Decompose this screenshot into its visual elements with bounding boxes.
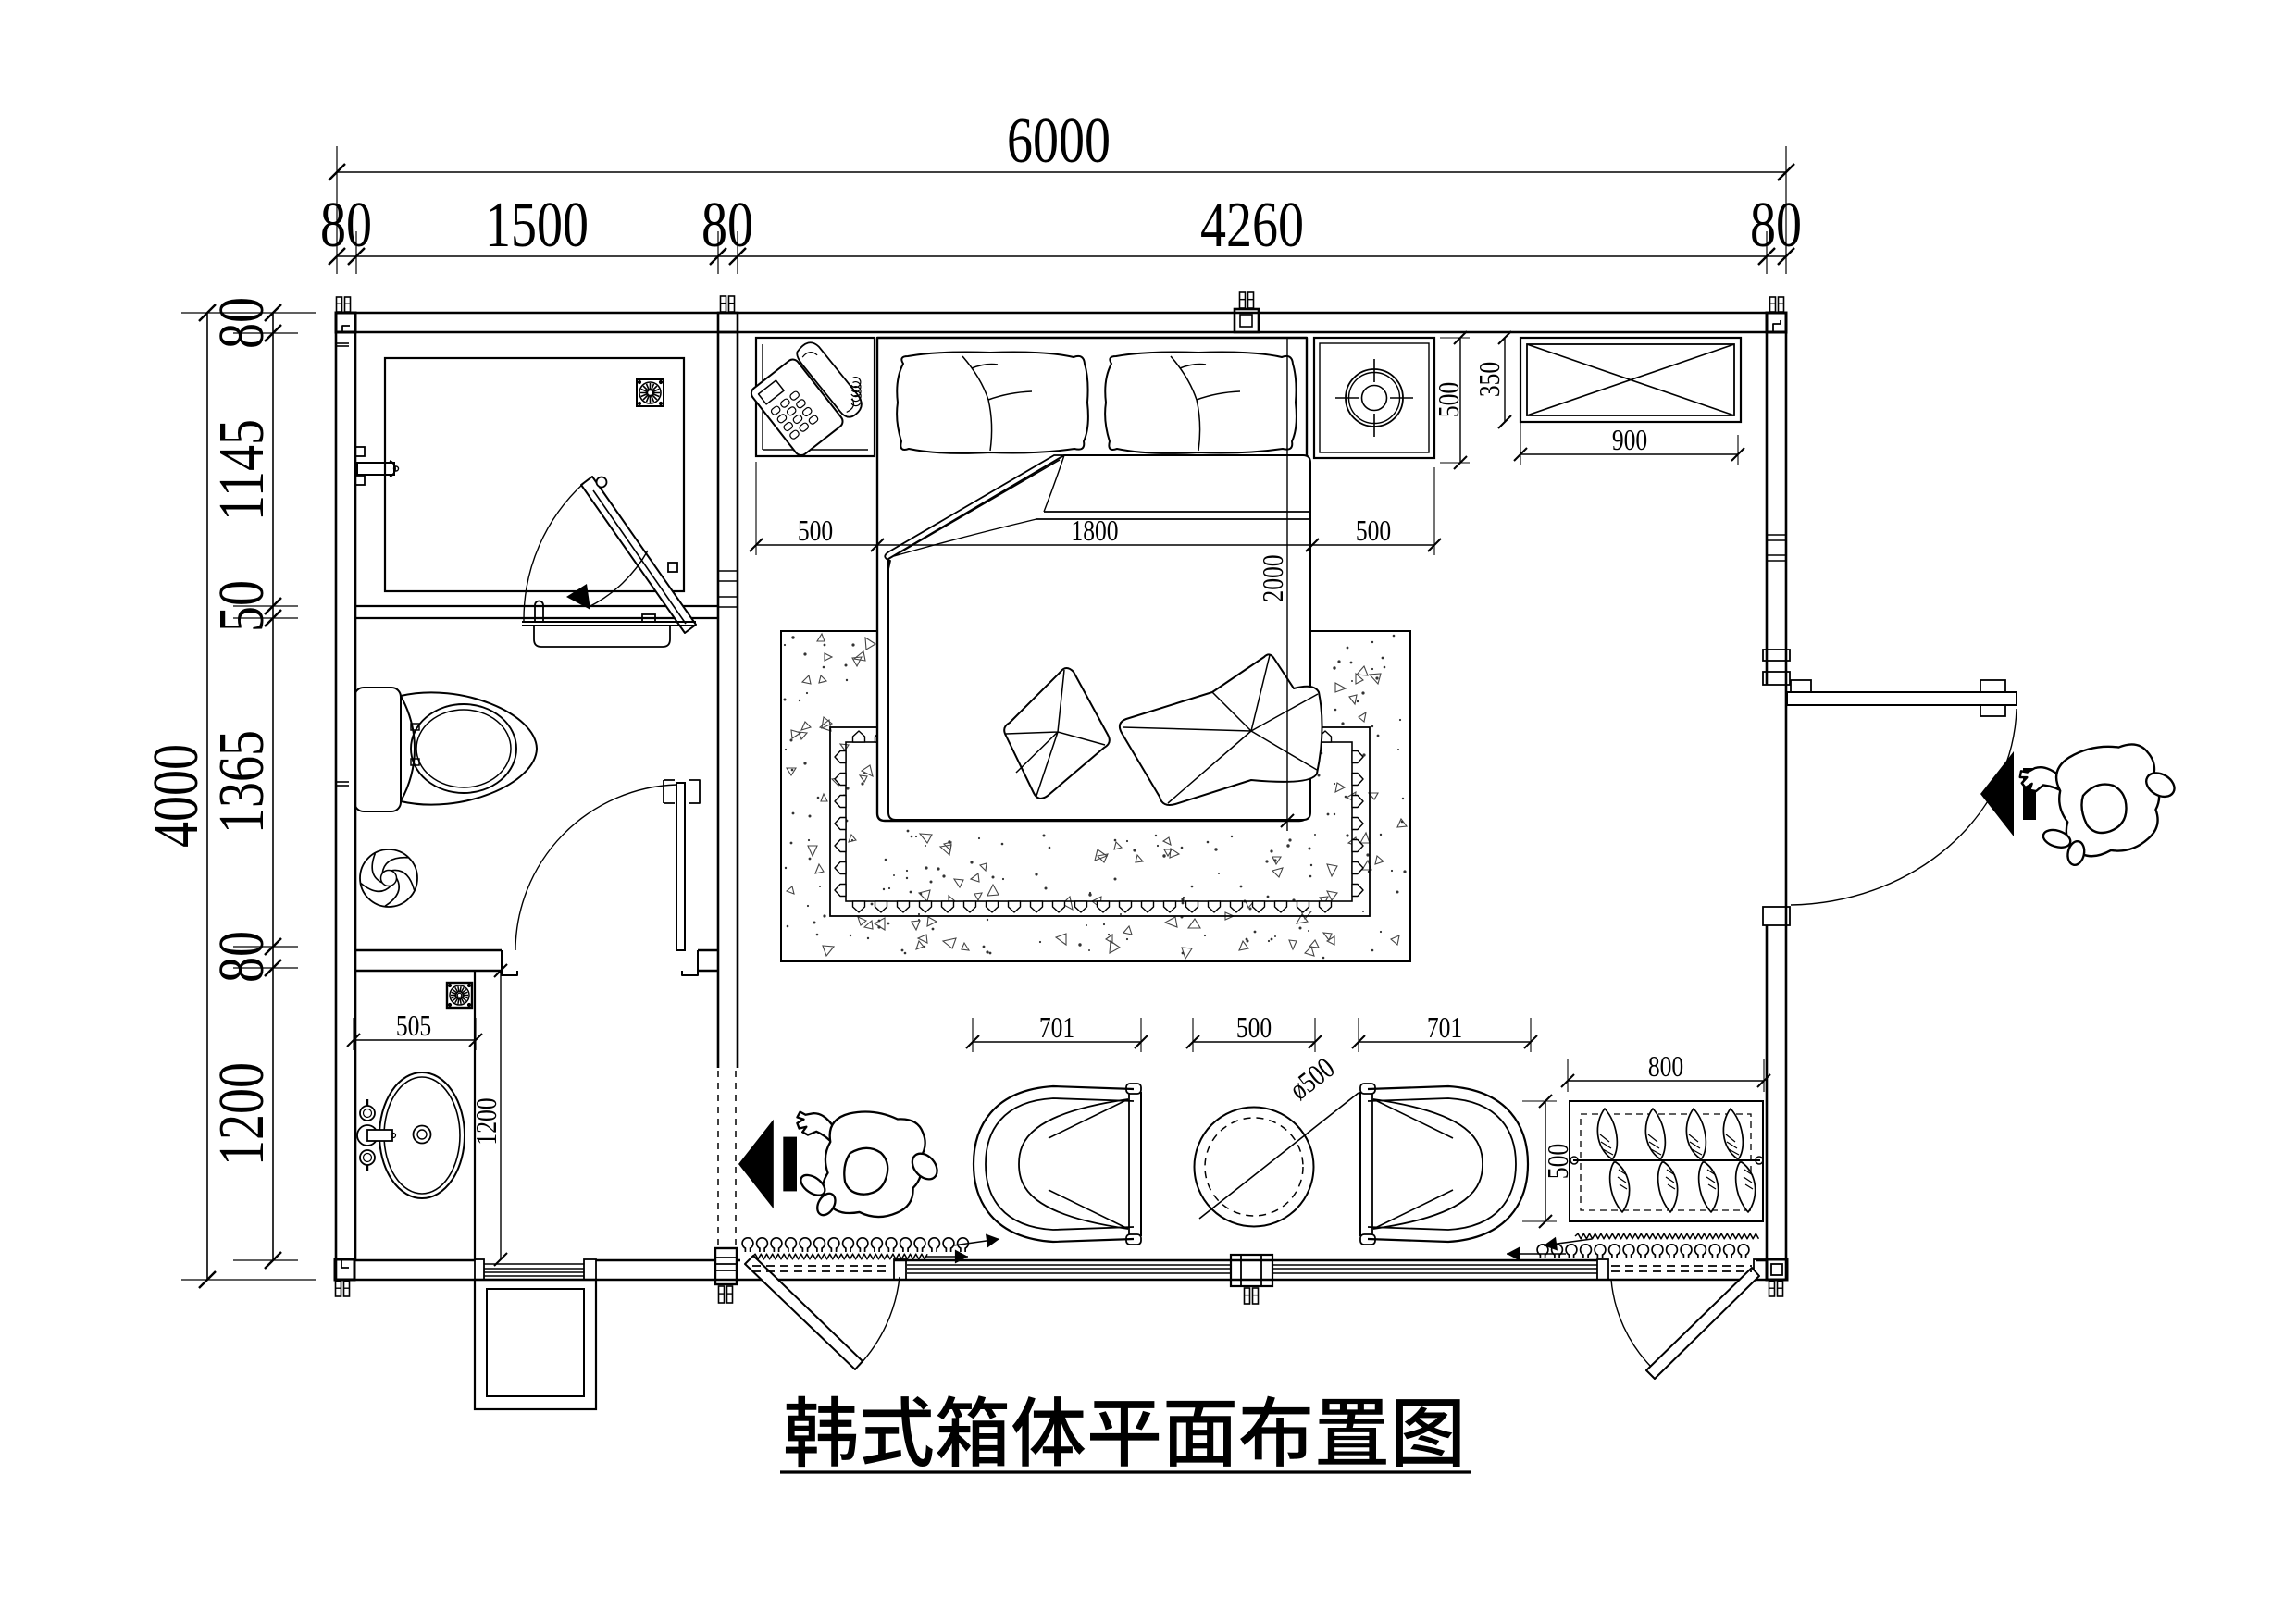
svg-text:1500: 1500 xyxy=(485,189,589,260)
svg-text:1145: 1145 xyxy=(205,419,277,521)
svg-text:701: 701 xyxy=(1427,1011,1462,1044)
svg-text:80: 80 xyxy=(701,189,753,260)
svg-text:900: 900 xyxy=(1612,424,1647,456)
svg-text:800: 800 xyxy=(1648,1050,1683,1083)
svg-text:350: 350 xyxy=(1473,362,1506,397)
svg-text:6000: 6000 xyxy=(1007,105,1111,176)
svg-text:50: 50 xyxy=(205,580,277,632)
svg-text:1200: 1200 xyxy=(205,1062,277,1166)
svg-text:505: 505 xyxy=(396,1010,431,1042)
svg-text:1365: 1365 xyxy=(205,730,277,834)
svg-text:1200: 1200 xyxy=(470,1097,503,1145)
svg-text:1800: 1800 xyxy=(1071,514,1118,547)
svg-text:500: 500 xyxy=(798,514,833,547)
svg-text:500: 500 xyxy=(1356,514,1391,547)
svg-text:701: 701 xyxy=(1039,1011,1074,1044)
svg-text:4000: 4000 xyxy=(140,744,211,848)
svg-text:80: 80 xyxy=(1750,189,1802,260)
svg-text:80: 80 xyxy=(205,931,277,983)
svg-text:500: 500 xyxy=(1236,1011,1272,1044)
svg-text:80: 80 xyxy=(205,297,277,349)
svg-text:4260: 4260 xyxy=(1200,189,1304,260)
svg-text:500: 500 xyxy=(1542,1144,1574,1179)
svg-text:80: 80 xyxy=(320,189,372,260)
svg-text:500: 500 xyxy=(1433,382,1465,417)
svg-text:2000: 2000 xyxy=(1257,554,1289,601)
